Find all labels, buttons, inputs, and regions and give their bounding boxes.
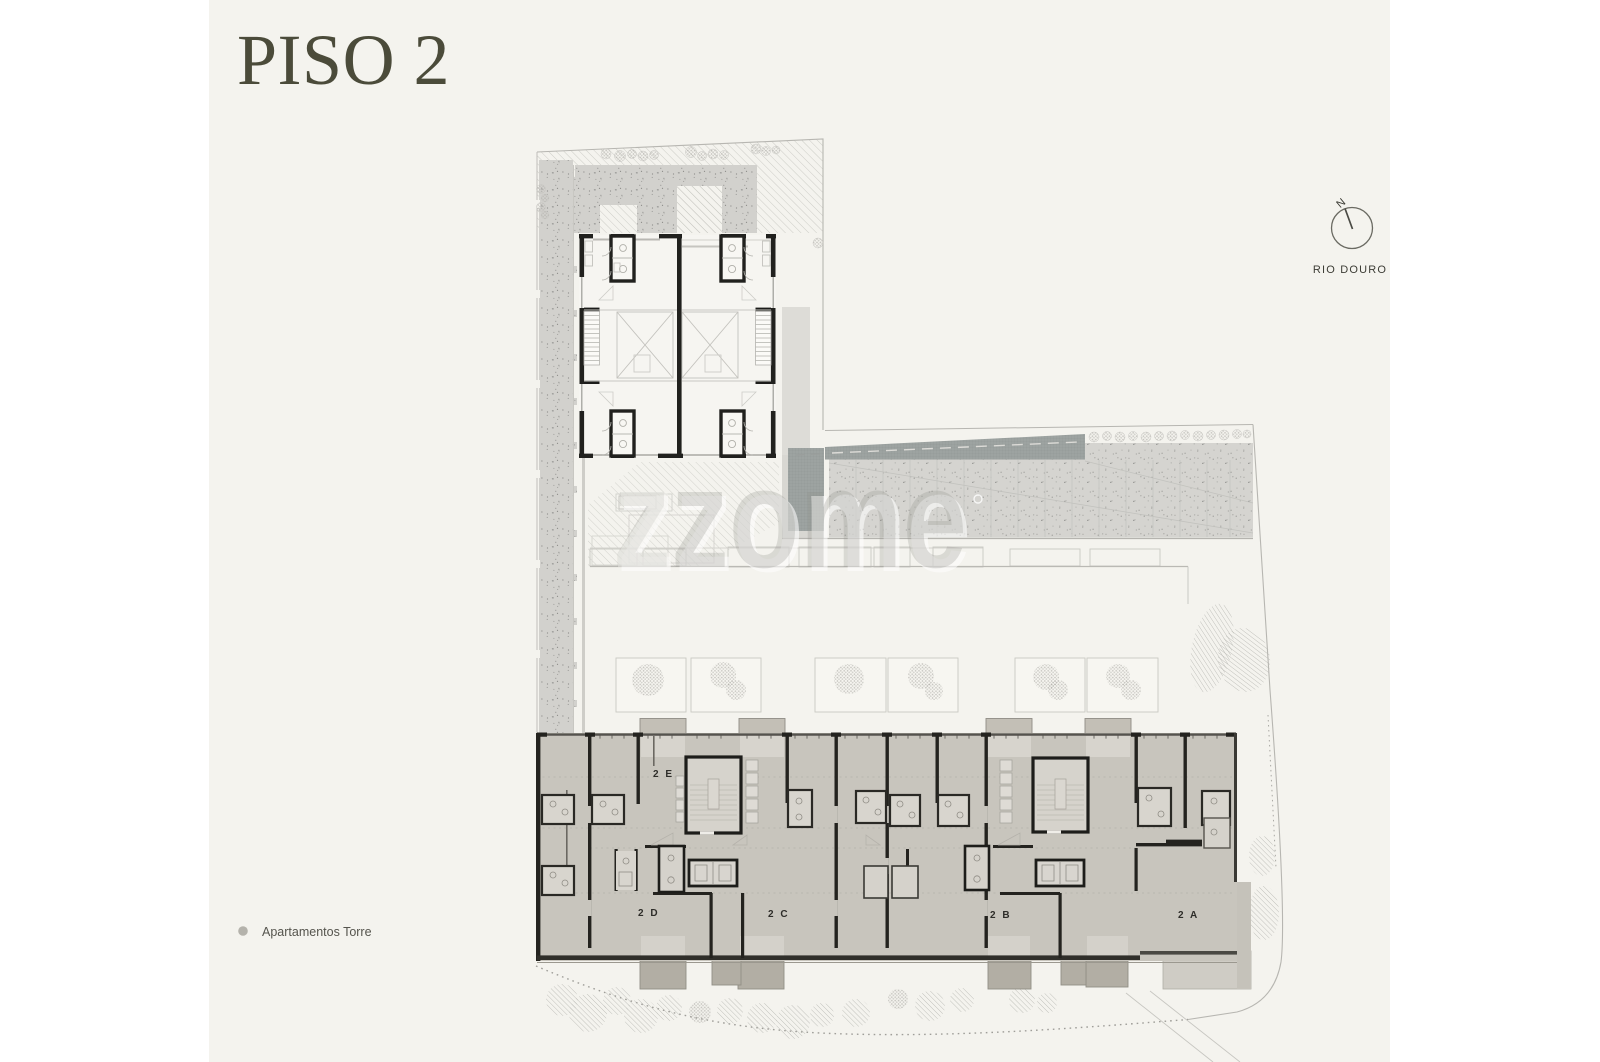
svg-text:RIO DOURO: RIO DOURO bbox=[1313, 264, 1387, 276]
svg-text:Apartamentos Torre: Apartamentos Torre bbox=[262, 925, 372, 939]
svg-text:2 C: 2 C bbox=[768, 909, 790, 920]
svg-text:2 A: 2 A bbox=[1178, 910, 1199, 921]
svg-text:z: z bbox=[613, 439, 675, 598]
svg-text:2 B: 2 B bbox=[990, 910, 1012, 921]
svg-text:2 E: 2 E bbox=[653, 769, 674, 780]
svg-text:2 D: 2 D bbox=[638, 908, 660, 919]
svg-text:PISO 2: PISO 2 bbox=[237, 20, 450, 100]
